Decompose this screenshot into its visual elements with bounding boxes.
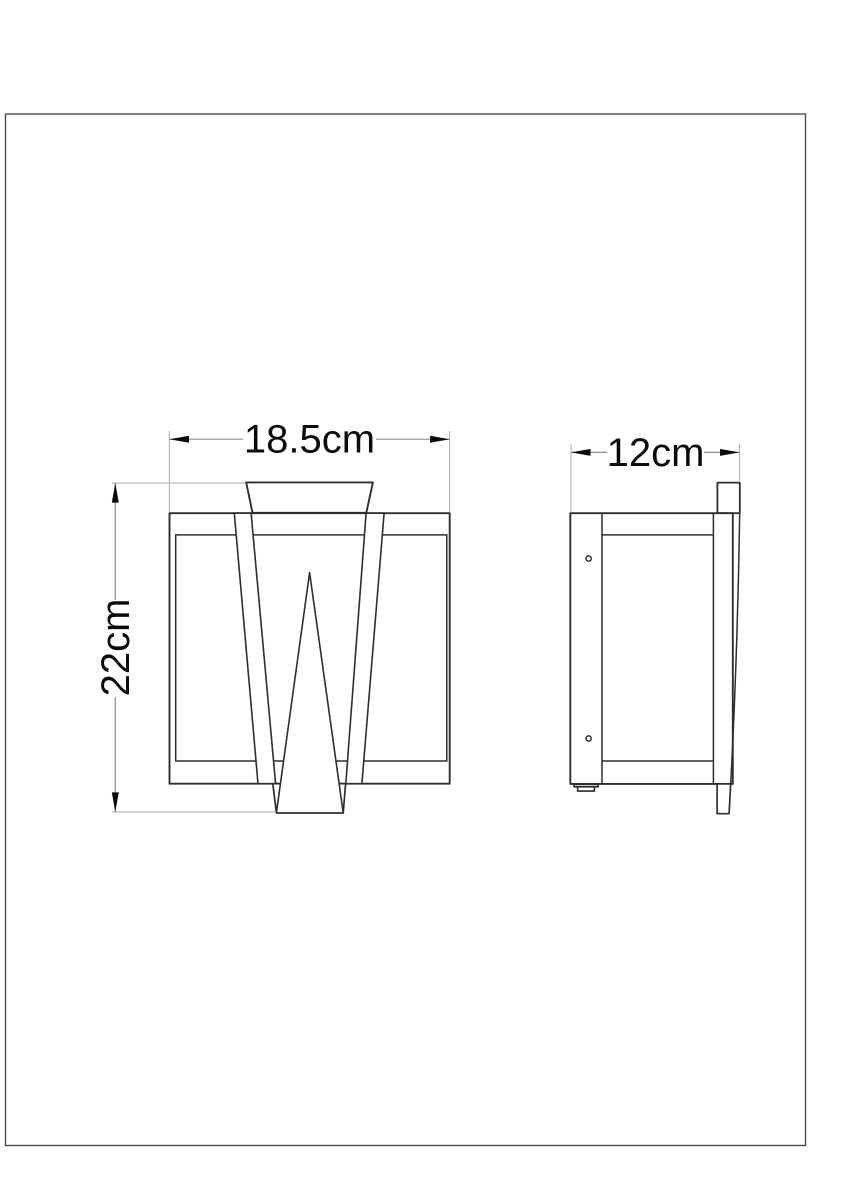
svg-text:22cm: 22cm (94, 599, 138, 697)
svg-text:12cm: 12cm (607, 431, 705, 475)
svg-text:18.5cm: 18.5cm (244, 418, 375, 462)
